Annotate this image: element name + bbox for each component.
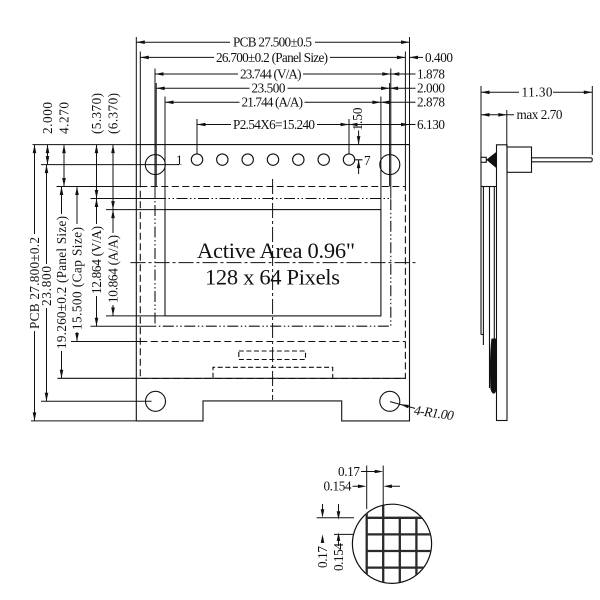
svg-text:7: 7 (364, 153, 371, 168)
svg-text:0.400: 0.400 (425, 50, 453, 65)
svg-text:0.154: 0.154 (331, 543, 346, 571)
svg-text:(5.370): (5.370) (89, 93, 104, 134)
svg-text:4.270: 4.270 (56, 102, 71, 134)
svg-text:max 2.70: max 2.70 (517, 107, 563, 122)
svg-text:1.878: 1.878 (417, 66, 445, 81)
svg-text:Active Area 0.96": Active Area 0.96" (197, 238, 355, 263)
svg-text:21.744 (A/A): 21.744 (A/A) (242, 95, 304, 110)
svg-text:0.17: 0.17 (338, 464, 360, 479)
svg-text:PCB 27.500±0.5: PCB 27.500±0.5 (233, 35, 312, 50)
svg-text:1: 1 (176, 153, 183, 168)
svg-text:11.30: 11.30 (522, 85, 553, 100)
svg-text:(6.370): (6.370) (105, 93, 120, 134)
svg-text:128 x 64 Pixels: 128 x 64 Pixels (205, 265, 340, 290)
svg-text:6.130: 6.130 (417, 117, 445, 132)
svg-text:2.878: 2.878 (417, 95, 445, 110)
svg-text:0.154: 0.154 (324, 479, 352, 494)
svg-text:4-R1.00: 4-R1.00 (413, 403, 455, 423)
svg-text:2.000: 2.000 (417, 81, 445, 96)
svg-text:23.500: 23.500 (252, 81, 286, 96)
svg-text:2.000: 2.000 (40, 102, 55, 134)
svg-text:0.17: 0.17 (315, 546, 330, 568)
svg-text:10.864 (A/A): 10.864 (A/A) (105, 235, 120, 303)
svg-text:1.50: 1.50 (350, 107, 365, 130)
svg-text:P2.54X6=15.240: P2.54X6=15.240 (233, 117, 315, 132)
svg-text:19.260±0.2 (Panel Size): 19.260±0.2 (Panel Size) (54, 216, 69, 349)
svg-text:12.864 (V/A): 12.864 (V/A) (89, 226, 104, 294)
svg-text:15.500 (Cap Size): 15.500 (Cap Size) (69, 227, 84, 330)
svg-text:26.700±0.2 (Panel Size): 26.700±0.2 (Panel Size) (216, 50, 328, 65)
svg-text:23.800: 23.800 (39, 266, 54, 306)
svg-text:23.744 (V/A): 23.744 (V/A) (240, 66, 302, 81)
